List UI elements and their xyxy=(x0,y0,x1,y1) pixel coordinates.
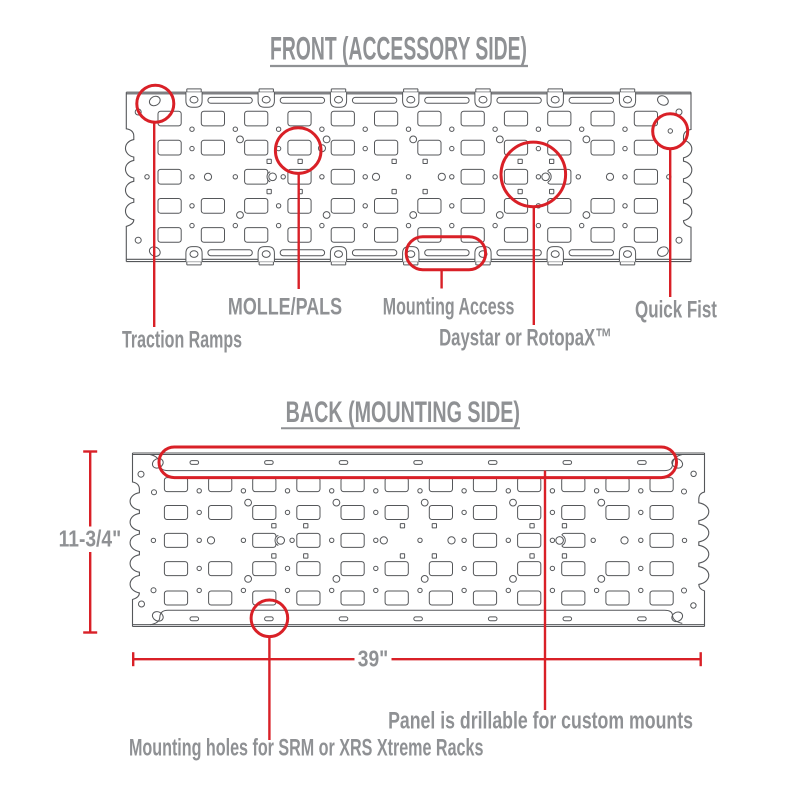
svg-text:Traction Ramps: Traction Ramps xyxy=(122,326,242,353)
svg-text:FRONT (ACCESSORY SIDE): FRONT (ACCESSORY SIDE) xyxy=(270,30,527,66)
svg-text:MOLLE/PALS: MOLLE/PALS xyxy=(228,293,342,320)
svg-text:Daystar or RotopaX™: Daystar or RotopaX™ xyxy=(439,324,612,351)
svg-text:Mounting holes for SRM or XRS: Mounting holes for SRM or XRS Xtreme Rac… xyxy=(129,734,483,761)
svg-text:11-3/4": 11-3/4" xyxy=(59,527,122,552)
svg-text:BACK (MOUNTING SIDE): BACK (MOUNTING SIDE) xyxy=(286,396,520,429)
svg-text:Quick Fist: Quick Fist xyxy=(635,297,717,324)
svg-text:Mounting Access: Mounting Access xyxy=(383,293,515,320)
svg-text:Panel is drillable for custom: Panel is drillable for custom mounts xyxy=(388,707,693,735)
svg-text:39": 39" xyxy=(358,647,389,672)
